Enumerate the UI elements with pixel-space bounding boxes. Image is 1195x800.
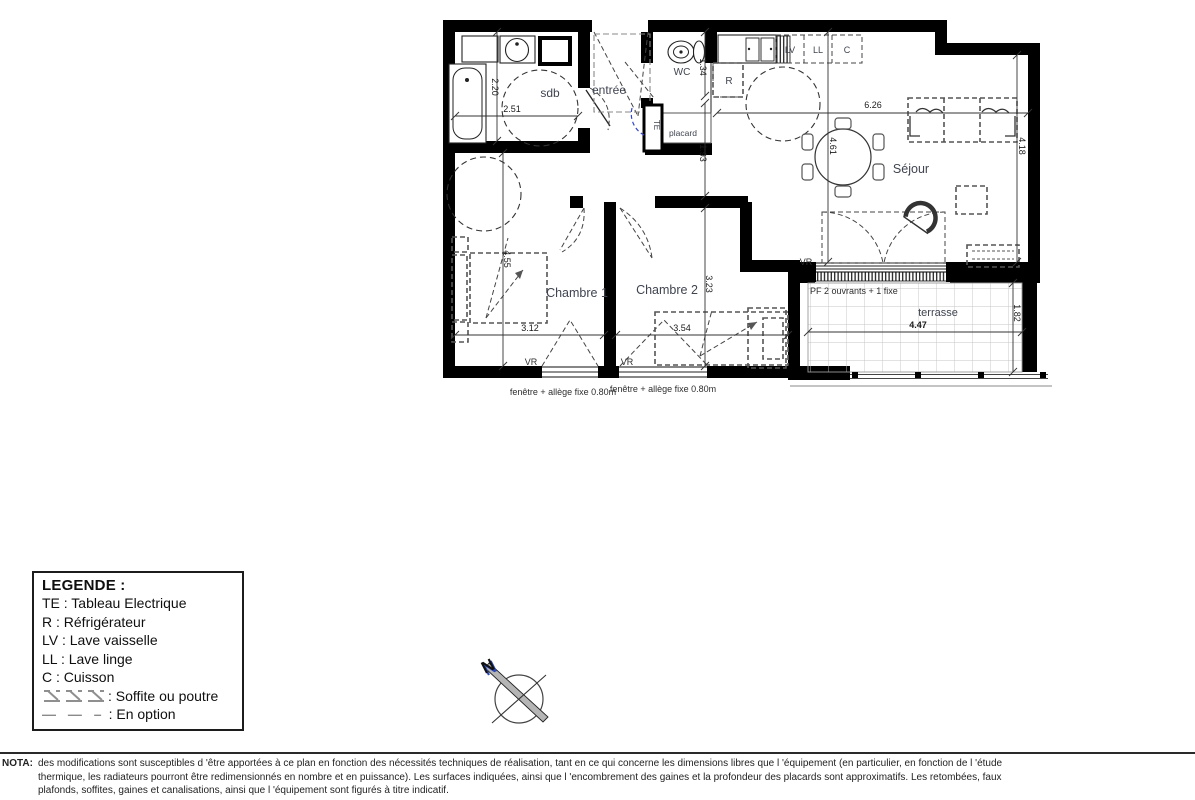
svg-text:4.61: 4.61 (828, 137, 838, 155)
shower-duct (540, 38, 570, 64)
label-electrical-panel: TE (652, 120, 661, 130)
legend-title: LEGENDE : (42, 577, 234, 594)
option-dash-icon: — — – (42, 705, 106, 723)
turning-circle-kitchen (746, 67, 820, 141)
svg-text:6.26: 6.26 (864, 100, 882, 110)
svg-text:4.18: 4.18 (1017, 137, 1027, 155)
dim-hall: 1.93 (698, 99, 709, 200)
compass: N N (478, 655, 548, 723)
svg-text:4.47: 4.47 (909, 320, 927, 330)
label-vr-chambre1: VR (525, 357, 538, 367)
sofa (908, 98, 1017, 142)
legend-item-ll: LL : Lave linge (42, 650, 234, 669)
label-fridge: R (725, 76, 732, 87)
dining-table (802, 118, 884, 197)
nota-line3: plafonds, soffites, gaines et canalisati… (38, 784, 1195, 798)
label-dishwasher: LV (785, 45, 795, 55)
dim-chambre2-width: 3.54 (612, 323, 792, 339)
dim-chambre1-height: 4.55 (499, 149, 512, 370)
room-label-sejour: Séjour (893, 162, 929, 176)
svg-text:1.34: 1.34 (698, 58, 708, 76)
window-sejour (811, 212, 951, 282)
legend-option-label: : En option (109, 705, 176, 723)
dim-sejour-height2: 4.18 (1013, 51, 1027, 266)
nota-label: NOTA: (2, 757, 33, 771)
caption-fenetre-1: fenêtre + allège fixe 0.80m (510, 387, 616, 397)
legend-box: LEGENDE : TE : Tableau Electrique R : Ré… (32, 571, 244, 731)
legend-soffite-label: : Soffite ou poutre (108, 687, 218, 705)
nota-line2: thermique, les radiateurs pourront être … (38, 771, 1195, 785)
label-vr-chambre2: VR (621, 357, 634, 367)
dim-sejour-width: 6.26 (713, 100, 1032, 117)
legend-item-lv: LV : Lave vaisselle (42, 631, 234, 650)
turning-circle-chambre1 (447, 157, 521, 231)
label-cooktop: C (844, 45, 851, 55)
legend-item-te: TE : Tableau Electrique (42, 594, 234, 613)
legend-item-c: C : Cuisson (42, 668, 234, 687)
nota-line1: des modifications sont susceptibles d 'ê… (38, 757, 1195, 771)
svg-text:3.23: 3.23 (704, 275, 714, 293)
soffite-hatch-icon (42, 688, 106, 704)
room-label-wc: WC (674, 67, 691, 78)
label-washer: LL (813, 45, 823, 55)
bathtub (449, 64, 486, 143)
window-chambre1 (536, 320, 604, 378)
window-chambre2 (613, 320, 713, 378)
caption-fenetre-2: fenêtre + allège fixe 0.80m (610, 384, 716, 394)
legend-item-option: — — – : En option (42, 705, 234, 723)
chambre2-door (620, 208, 652, 258)
toilet (625, 41, 705, 98)
room-label-placard: placard (669, 128, 697, 138)
room-label-terrasse: terrasse (918, 307, 958, 319)
washbasin (462, 36, 535, 63)
legend-item-r: R : Réfrigérateur (42, 613, 234, 632)
legend-item-soffite: : Soffite ou poutre (42, 687, 234, 705)
svg-text:4.55: 4.55 (502, 250, 512, 268)
svg-text:1.93: 1.93 (698, 144, 708, 162)
room-label-chambre2: Chambre 2 (636, 283, 698, 297)
room-label-entree: entrée (592, 83, 626, 97)
chambre2-furniture (655, 308, 788, 368)
room-label-chambre1: Chambre 1 (546, 286, 608, 300)
dim-chambre1-width: 3.12 (451, 323, 608, 339)
floor-plan-page: 2.51 2.20 1.34 1.93 6.26 (0, 0, 1195, 800)
svg-text:3.12: 3.12 (521, 323, 539, 333)
svg-text:1.82: 1.82 (1012, 304, 1022, 322)
svg-text:3.54: 3.54 (673, 323, 691, 333)
room-label-sdb: sdb (540, 86, 560, 100)
dim-sejour-height1: 4.61 (824, 28, 838, 266)
armchair (903, 197, 941, 233)
side-table (956, 186, 987, 214)
chambre1-door (560, 208, 584, 252)
svg-text:2.51: 2.51 (503, 104, 521, 114)
nota-footer: NOTA: des modifications sont susceptible… (0, 752, 1195, 798)
label-vr-sejour: VR (800, 257, 813, 267)
svg-text:2.20: 2.20 (490, 78, 500, 96)
label-pf-sejour: PF 2 ouvrants + 1 fixe (810, 286, 898, 296)
